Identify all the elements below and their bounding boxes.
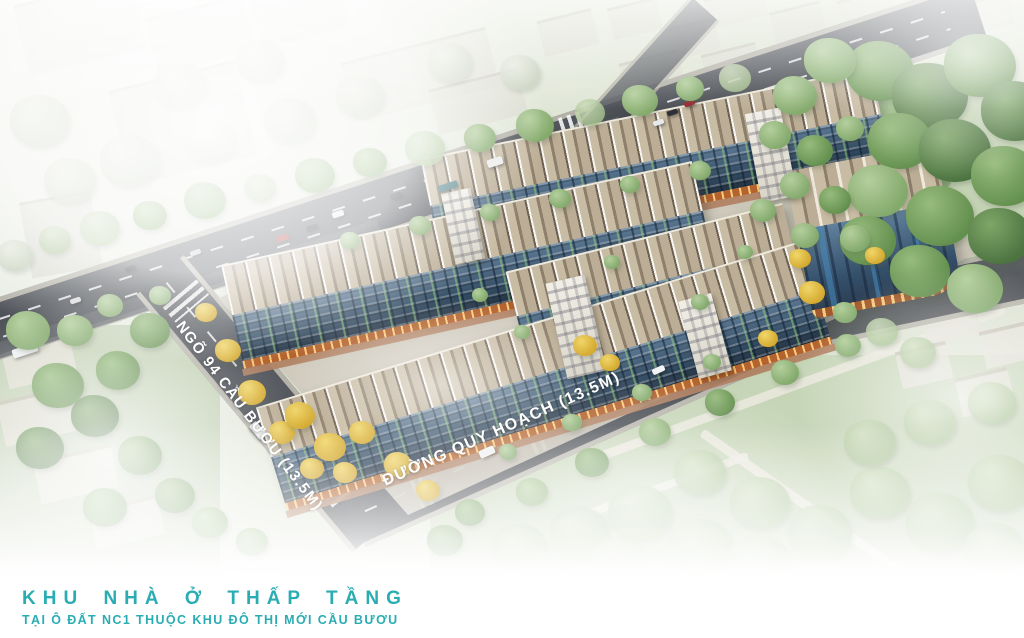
tree <box>405 131 445 166</box>
tree <box>906 186 974 246</box>
tree <box>516 478 548 506</box>
tree <box>865 247 885 265</box>
tree <box>71 395 119 437</box>
tree <box>130 313 170 348</box>
tree <box>285 402 315 428</box>
tree <box>149 286 171 305</box>
tree <box>57 315 93 347</box>
tree <box>562 414 582 432</box>
tree <box>155 478 195 513</box>
tree <box>39 226 71 254</box>
tree <box>759 121 791 149</box>
tree <box>780 172 810 198</box>
tree <box>416 480 440 501</box>
tree <box>750 199 776 222</box>
background-building <box>536 8 599 57</box>
tree <box>97 294 123 317</box>
tree <box>575 99 605 125</box>
tree <box>16 427 64 469</box>
tree <box>604 255 620 269</box>
caption-band: KHU NHÀ Ở THẤP TẦNG TẠI Ô ĐẤT NC1 THUỘC … <box>0 580 1024 638</box>
tree <box>336 75 384 117</box>
tree <box>264 98 316 144</box>
tree <box>500 55 540 90</box>
tree <box>600 354 620 372</box>
tree <box>674 450 726 496</box>
tree <box>464 124 496 152</box>
tree <box>819 186 851 214</box>
tree <box>573 335 597 356</box>
project-subtitle: TẠI Ô ĐẤT NC1 THUỘC KHU ĐÔ THỊ MỚI CẦU B… <box>22 613 399 627</box>
tree <box>215 339 241 362</box>
tree <box>758 330 778 348</box>
tree <box>409 216 431 235</box>
tree <box>514 325 530 339</box>
tree <box>719 64 751 92</box>
tree <box>192 507 228 539</box>
tree <box>900 337 936 369</box>
tree <box>427 525 463 557</box>
tree <box>455 499 485 525</box>
tree <box>968 455 1024 511</box>
tree <box>620 176 640 194</box>
tree <box>791 223 819 248</box>
tree <box>866 318 898 346</box>
tree <box>32 363 84 409</box>
rendering-page: NGÕ 94 CẦU BƯƠU (13.5M) ĐƯỜNG QUY HOẠCH … <box>0 0 1024 638</box>
tree <box>947 264 1003 313</box>
tree <box>295 158 335 193</box>
tree <box>6 311 50 350</box>
tree <box>788 505 852 561</box>
tree <box>737 245 753 259</box>
background-building <box>978 321 1024 369</box>
tree <box>480 204 500 222</box>
tree <box>428 43 472 82</box>
tree <box>804 38 856 84</box>
tree <box>691 294 709 310</box>
tree <box>639 418 671 446</box>
tree <box>353 148 387 178</box>
tree <box>971 146 1024 206</box>
tree <box>771 360 799 385</box>
tree <box>705 389 735 415</box>
tree <box>154 63 206 109</box>
project-title: KHU NHÀ Ở THẤP TẦNG <box>22 588 408 610</box>
tree <box>789 249 811 268</box>
tree <box>96 351 140 390</box>
tree <box>349 421 375 444</box>
tree <box>890 245 950 298</box>
tree <box>797 135 833 167</box>
tree <box>850 467 910 520</box>
tree <box>836 116 864 141</box>
tree <box>340 232 360 250</box>
tree <box>608 485 672 541</box>
tree <box>244 174 276 202</box>
tree <box>730 477 790 530</box>
tree <box>799 281 825 304</box>
tree <box>676 76 704 101</box>
tree <box>314 433 346 461</box>
tree <box>844 420 896 466</box>
tree <box>904 400 956 446</box>
tree <box>833 302 857 323</box>
tree <box>968 382 1016 424</box>
tree <box>622 85 658 117</box>
tree <box>516 109 554 142</box>
tree <box>968 208 1024 264</box>
tree <box>195 303 217 322</box>
tree <box>632 384 652 402</box>
background-building <box>13 0 147 76</box>
tree <box>236 40 284 82</box>
tree <box>100 135 160 188</box>
aerial-render: NGÕ 94 CẦU BƯƠU (13.5M) ĐƯỜNG QUY HOẠCH … <box>0 0 1024 580</box>
tree <box>80 211 120 246</box>
tree <box>575 448 609 478</box>
tree <box>236 528 268 556</box>
tree <box>689 161 711 180</box>
tree <box>118 436 162 475</box>
tree <box>549 189 571 208</box>
tree <box>133 201 167 231</box>
tree <box>848 165 908 218</box>
tree <box>44 158 96 204</box>
tree <box>472 288 488 302</box>
tree <box>184 182 226 219</box>
tree <box>965 523 1024 576</box>
tree <box>906 493 974 553</box>
tree <box>773 76 817 115</box>
tree <box>0 240 33 272</box>
tree <box>835 334 861 357</box>
tree <box>184 118 236 164</box>
tree <box>703 354 721 370</box>
tree <box>840 225 870 251</box>
tree <box>10 95 70 148</box>
tree <box>83 488 127 527</box>
tree <box>333 462 357 483</box>
tree <box>499 444 517 460</box>
